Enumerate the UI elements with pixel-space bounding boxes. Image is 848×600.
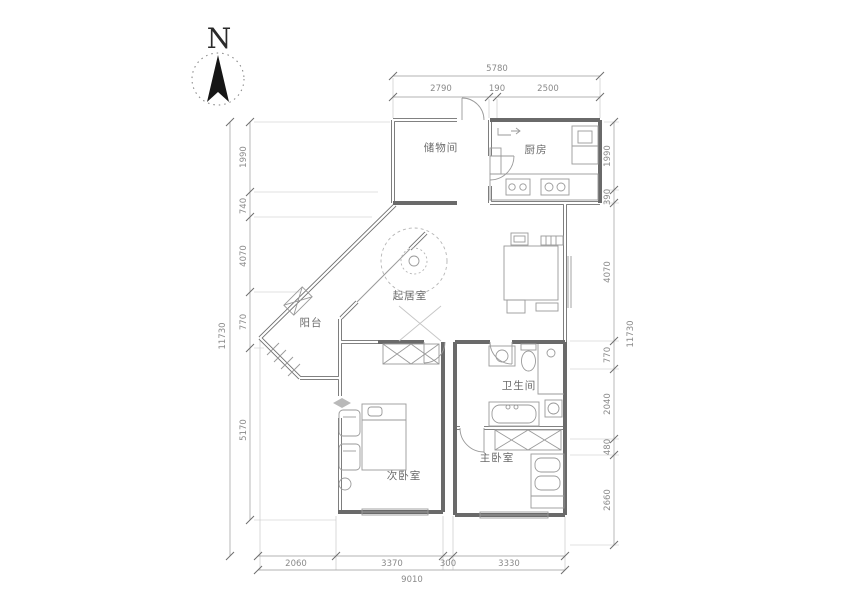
dimensions-top: 5780 2790 190 2500 xyxy=(430,64,559,94)
dim-right-seg-6: 2660 xyxy=(603,489,613,511)
dimension-ticks xyxy=(226,72,618,574)
fridge xyxy=(572,126,598,164)
dim-top-seg-1: 190 xyxy=(489,84,505,94)
room-label-kitchen: 厨房 xyxy=(525,143,548,156)
dim-right-seg-3: 770 xyxy=(603,347,613,363)
fixtures xyxy=(339,126,598,508)
dim-right-seg-1: 390 xyxy=(603,189,613,205)
dimensions-left: 1990 740 4070 770 5170 11730 xyxy=(218,146,249,441)
dining-set xyxy=(504,233,571,313)
dim-left-seg-3: 770 xyxy=(239,314,249,330)
balcony-door-marks xyxy=(333,398,351,408)
dim-bottom-seg-3: 3330 xyxy=(498,559,520,569)
dim-left-seg-1: 740 xyxy=(239,198,249,214)
dim-top-total: 5780 xyxy=(486,64,508,74)
bedroom2-window xyxy=(362,509,428,515)
room-label-living: 起居室 xyxy=(393,289,428,302)
dim-bottom-total: 9010 xyxy=(401,575,423,585)
bath-door xyxy=(490,342,512,364)
dim-right-seg-0: 1990 xyxy=(603,145,613,167)
master-door xyxy=(460,428,484,452)
dim-bottom-seg-2: 300 xyxy=(440,559,456,569)
dim-left-seg-0: 1990 xyxy=(239,146,249,168)
floor-plan-page: N 5780 2790 190 2500 2060 3370 300 3330 … xyxy=(0,0,848,600)
radiator xyxy=(568,256,571,308)
dimensions-right: 1990 390 4070 770 2040 480 2660 11730 xyxy=(603,145,636,511)
dim-right-seg-5: 480 xyxy=(603,439,613,455)
dim-bottom-seg-0: 2060 xyxy=(285,559,307,569)
bedroom2-furniture xyxy=(339,344,439,490)
dimensions-bottom: 2060 3370 300 3330 9010 xyxy=(285,559,520,585)
kitchen-door xyxy=(490,156,514,180)
master-furniture xyxy=(495,430,564,508)
dim-right-seg-2: 4070 xyxy=(603,261,613,283)
dim-left-seg-4: 5170 xyxy=(239,419,249,441)
master-window xyxy=(480,512,548,518)
floor-plan-drawing: N 5780 2790 190 2500 2060 3370 300 3330 … xyxy=(0,0,848,600)
room-label-storage: 储物间 xyxy=(424,141,459,154)
dim-left-seg-2: 4070 xyxy=(239,245,249,267)
entry-door xyxy=(462,98,484,120)
north-label: N xyxy=(207,22,232,55)
room-label-secondary-bedroom: 次卧室 xyxy=(387,469,422,482)
north-arrow: N xyxy=(192,22,244,105)
dim-right-total: 11730 xyxy=(626,320,636,347)
dim-top-seg-2: 2500 xyxy=(537,84,559,94)
entry-cabinet-symbol xyxy=(498,128,520,135)
compass-needle-icon xyxy=(207,55,229,102)
dim-left-total: 11730 xyxy=(218,322,228,349)
room-label-master-bedroom: 主卧室 xyxy=(480,451,515,464)
room-label-bathroom: 卫生间 xyxy=(502,379,537,392)
dim-right-seg-4: 2040 xyxy=(603,393,613,415)
dim-top-seg-0: 2790 xyxy=(430,84,452,94)
room-label-balcony: 阳台 xyxy=(300,316,323,329)
dim-bottom-seg-1: 3370 xyxy=(381,559,403,569)
